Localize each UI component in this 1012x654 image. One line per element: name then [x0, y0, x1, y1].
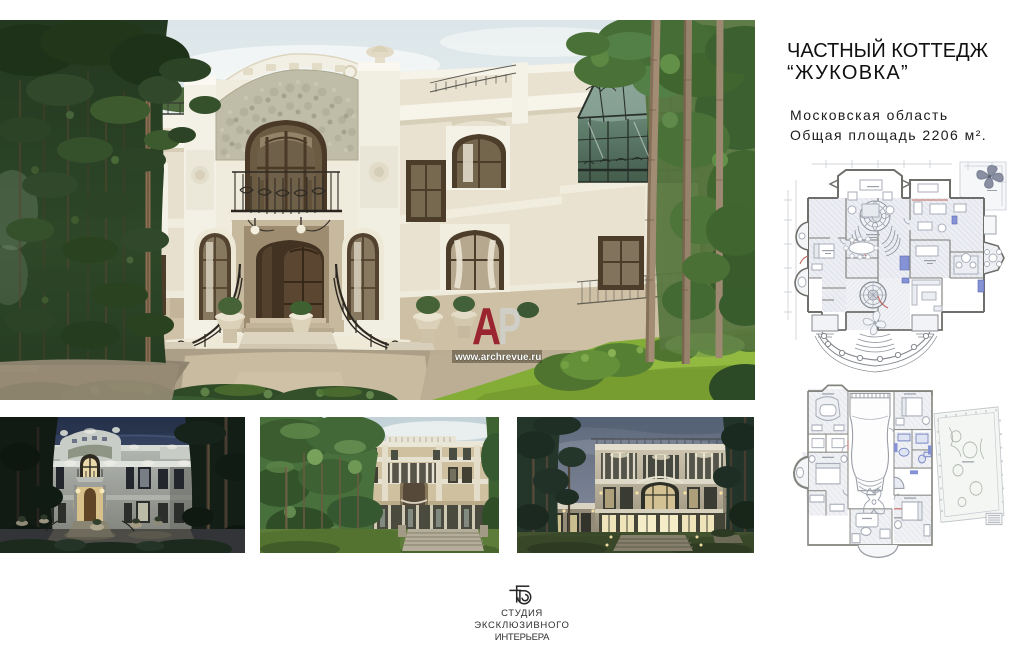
svg-text:А: А — [472, 298, 501, 356]
svg-text:www.archrevue.ru: www.archrevue.ru — [454, 352, 541, 363]
svg-text:Р: Р — [498, 298, 521, 356]
